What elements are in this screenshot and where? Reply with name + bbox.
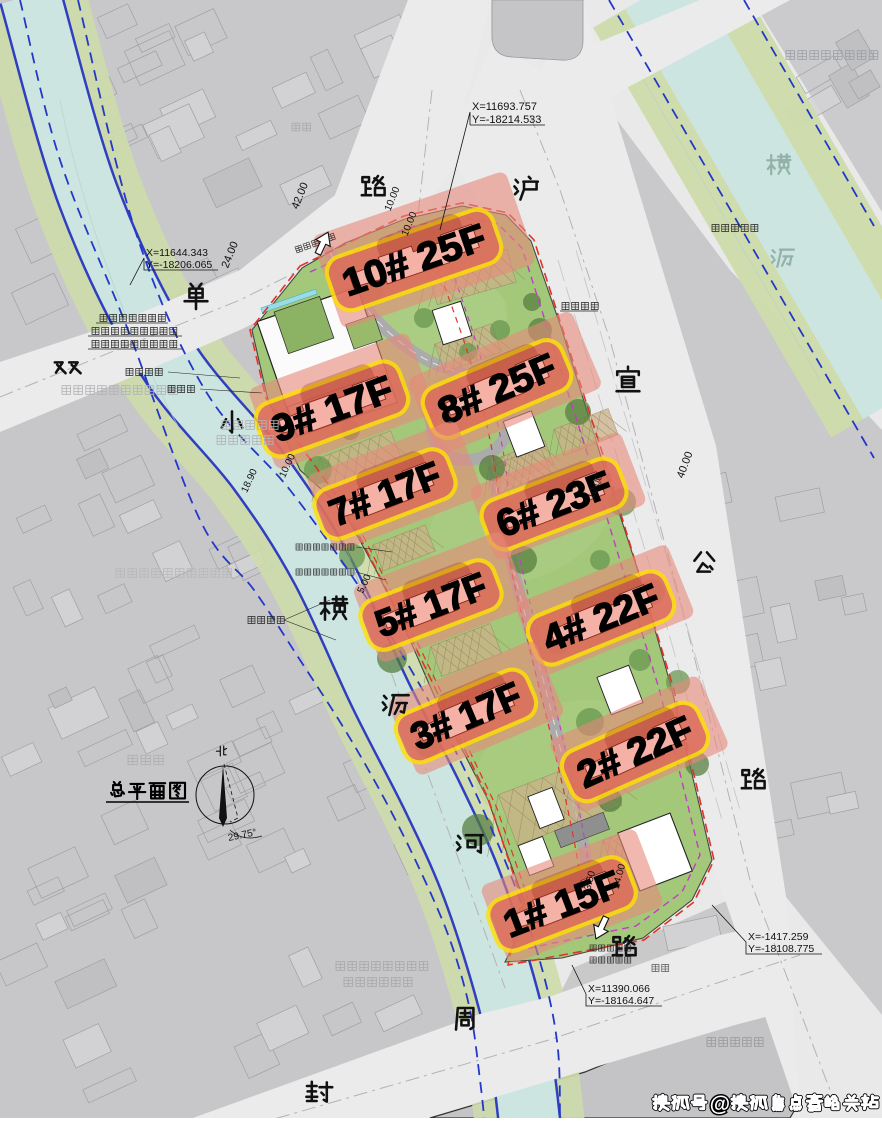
svg-text:X=11693.757: X=11693.757: [472, 101, 537, 113]
svg-text:Y=-18214.533: Y=-18214.533: [472, 114, 541, 126]
svg-text:@: @: [710, 1093, 730, 1116]
svg-text:Y=-18206.065: Y=-18206.065: [146, 259, 212, 271]
svg-text:X=11644.343: X=11644.343: [146, 247, 208, 259]
svg-text:X=-1417.259: X=-1417.259: [748, 931, 809, 943]
svg-text:X=11390.066: X=11390.066: [588, 983, 650, 995]
svg-text:Y=-18164.647: Y=-18164.647: [588, 995, 654, 1007]
svg-text:Y=-18108.775: Y=-18108.775: [748, 943, 814, 955]
